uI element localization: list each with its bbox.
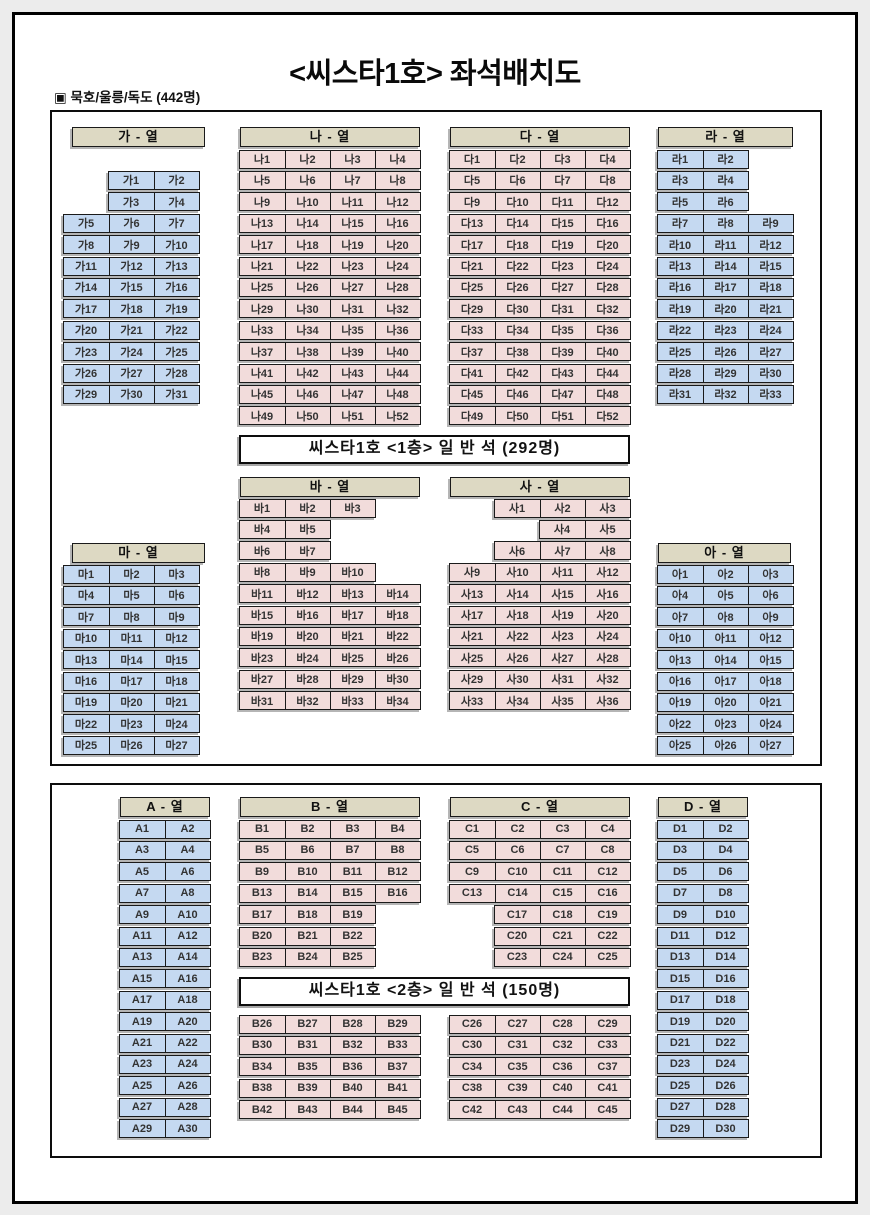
seat-나14[interactable]: 나14 (285, 215, 330, 232)
seat-다7[interactable]: 다7 (540, 172, 585, 189)
seat-A19[interactable]: A19 (120, 1013, 165, 1030)
seat-아4[interactable]: 아4 (658, 587, 703, 604)
seat-D30[interactable]: D30 (703, 1120, 748, 1137)
seat-바17[interactable]: 바17 (330, 607, 375, 624)
seat-D6[interactable]: D6 (703, 863, 748, 880)
seat-아6[interactable]: 아6 (748, 587, 793, 604)
seat-A7[interactable]: A7 (120, 885, 165, 902)
seat-가18[interactable]: 가18 (109, 300, 154, 317)
seat-D24[interactable]: D24 (703, 1056, 748, 1073)
seat-C21[interactable]: C21 (540, 928, 585, 945)
seat-바4[interactable]: 바4 (240, 521, 285, 538)
seat-나50[interactable]: 나50 (285, 407, 330, 424)
seat-C38[interactable]: C38 (450, 1080, 495, 1097)
seat-아21[interactable]: 아21 (748, 694, 793, 711)
seat-B8[interactable]: B8 (375, 842, 420, 859)
seat-마14[interactable]: 마14 (109, 651, 154, 668)
seat-A29[interactable]: A29 (120, 1120, 165, 1137)
seat-나42[interactable]: 나42 (285, 365, 330, 382)
seat-나20[interactable]: 나20 (375, 236, 420, 253)
seat-사18[interactable]: 사18 (495, 607, 540, 624)
seat-사2[interactable]: 사2 (540, 500, 585, 517)
seat-다52[interactable]: 다52 (585, 407, 630, 424)
seat-다10[interactable]: 다10 (495, 193, 540, 210)
seat-사12[interactable]: 사12 (585, 564, 630, 581)
seat-C11[interactable]: C11 (540, 863, 585, 880)
seat-바28[interactable]: 바28 (285, 671, 330, 688)
seat-다39[interactable]: 다39 (540, 343, 585, 360)
seat-라19[interactable]: 라19 (658, 300, 703, 317)
seat-아16[interactable]: 아16 (658, 673, 703, 690)
seat-가13[interactable]: 가13 (154, 258, 199, 275)
seat-C33[interactable]: C33 (585, 1037, 630, 1054)
seat-사17[interactable]: 사17 (450, 607, 495, 624)
seat-가20[interactable]: 가20 (64, 322, 109, 339)
seat-D28[interactable]: D28 (703, 1099, 748, 1116)
seat-나23[interactable]: 나23 (330, 258, 375, 275)
seat-바32[interactable]: 바32 (285, 692, 330, 709)
seat-B36[interactable]: B36 (330, 1058, 375, 1075)
seat-마5[interactable]: 마5 (109, 587, 154, 604)
seat-D17[interactable]: D17 (658, 992, 703, 1009)
seat-나3[interactable]: 나3 (330, 151, 375, 168)
seat-다46[interactable]: 다46 (495, 386, 540, 403)
seat-A27[interactable]: A27 (120, 1099, 165, 1116)
seat-바13[interactable]: 바13 (330, 585, 375, 602)
seat-바25[interactable]: 바25 (330, 649, 375, 666)
seat-바30[interactable]: 바30 (375, 671, 420, 688)
seat-나13[interactable]: 나13 (240, 215, 285, 232)
seat-B35[interactable]: B35 (285, 1058, 330, 1075)
seat-C40[interactable]: C40 (540, 1080, 585, 1097)
seat-바10[interactable]: 바10 (330, 564, 375, 581)
seat-B27[interactable]: B27 (285, 1016, 330, 1033)
seat-마22[interactable]: 마22 (64, 715, 109, 732)
seat-C16[interactable]: C16 (585, 885, 630, 902)
seat-다19[interactable]: 다19 (540, 236, 585, 253)
seat-B37[interactable]: B37 (375, 1058, 420, 1075)
seat-A4[interactable]: A4 (165, 842, 210, 859)
seat-라17[interactable]: 라17 (703, 279, 748, 296)
seat-나35[interactable]: 나35 (330, 322, 375, 339)
seat-A14[interactable]: A14 (165, 949, 210, 966)
seat-가5[interactable]: 가5 (64, 215, 109, 232)
seat-나34[interactable]: 나34 (285, 322, 330, 339)
seat-C4[interactable]: C4 (585, 821, 630, 838)
seat-C45[interactable]: C45 (585, 1101, 630, 1118)
seat-사4[interactable]: 사4 (540, 521, 585, 538)
seat-사14[interactable]: 사14 (495, 585, 540, 602)
seat-B31[interactable]: B31 (285, 1037, 330, 1054)
seat-다47[interactable]: 다47 (540, 386, 585, 403)
seat-A30[interactable]: A30 (165, 1120, 210, 1137)
seat-나43[interactable]: 나43 (330, 365, 375, 382)
seat-바22[interactable]: 바22 (375, 628, 420, 645)
seat-사34[interactable]: 사34 (495, 692, 540, 709)
seat-라18[interactable]: 라18 (748, 279, 793, 296)
seat-D25[interactable]: D25 (658, 1077, 703, 1094)
seat-가6[interactable]: 가6 (109, 215, 154, 232)
seat-나4[interactable]: 나4 (375, 151, 420, 168)
seat-D11[interactable]: D11 (658, 928, 703, 945)
seat-마13[interactable]: 마13 (64, 651, 109, 668)
seat-A6[interactable]: A6 (165, 863, 210, 880)
seat-아2[interactable]: 아2 (703, 566, 748, 583)
seat-바33[interactable]: 바33 (330, 692, 375, 709)
seat-나24[interactable]: 나24 (375, 258, 420, 275)
seat-B17[interactable]: B17 (240, 906, 285, 923)
seat-사5[interactable]: 사5 (585, 521, 630, 538)
seat-다49[interactable]: 다49 (450, 407, 495, 424)
seat-C31[interactable]: C31 (495, 1037, 540, 1054)
seat-다27[interactable]: 다27 (540, 279, 585, 296)
seat-B33[interactable]: B33 (375, 1037, 420, 1054)
seat-B21[interactable]: B21 (285, 928, 330, 945)
seat-아3[interactable]: 아3 (748, 566, 793, 583)
seat-나17[interactable]: 나17 (240, 236, 285, 253)
seat-나44[interactable]: 나44 (375, 365, 420, 382)
seat-B24[interactable]: B24 (285, 949, 330, 966)
seat-사11[interactable]: 사11 (540, 564, 585, 581)
seat-다4[interactable]: 다4 (585, 151, 630, 168)
seat-마24[interactable]: 마24 (154, 715, 199, 732)
seat-가27[interactable]: 가27 (109, 365, 154, 382)
seat-다21[interactable]: 다21 (450, 258, 495, 275)
seat-다34[interactable]: 다34 (495, 322, 540, 339)
seat-A3[interactable]: A3 (120, 842, 165, 859)
seat-바16[interactable]: 바16 (285, 607, 330, 624)
seat-다12[interactable]: 다12 (585, 193, 630, 210)
seat-A11[interactable]: A11 (120, 928, 165, 945)
seat-C7[interactable]: C7 (540, 842, 585, 859)
seat-B9[interactable]: B9 (240, 863, 285, 880)
seat-다2[interactable]: 다2 (495, 151, 540, 168)
seat-A5[interactable]: A5 (120, 863, 165, 880)
seat-가3[interactable]: 가3 (109, 193, 154, 210)
seat-사26[interactable]: 사26 (495, 649, 540, 666)
seat-나5[interactable]: 나5 (240, 172, 285, 189)
seat-사32[interactable]: 사32 (585, 671, 630, 688)
seat-사16[interactable]: 사16 (585, 585, 630, 602)
seat-B45[interactable]: B45 (375, 1101, 420, 1118)
seat-가2[interactable]: 가2 (154, 172, 199, 189)
seat-마16[interactable]: 마16 (64, 673, 109, 690)
seat-나12[interactable]: 나12 (375, 193, 420, 210)
seat-C42[interactable]: C42 (450, 1101, 495, 1118)
seat-A17[interactable]: A17 (120, 992, 165, 1009)
seat-가8[interactable]: 가8 (64, 236, 109, 253)
seat-C14[interactable]: C14 (495, 885, 540, 902)
seat-마9[interactable]: 마9 (154, 608, 199, 625)
seat-B29[interactable]: B29 (375, 1016, 420, 1033)
seat-B23[interactable]: B23 (240, 949, 285, 966)
seat-바24[interactable]: 바24 (285, 649, 330, 666)
seat-A25[interactable]: A25 (120, 1077, 165, 1094)
seat-C9[interactable]: C9 (450, 863, 495, 880)
seat-라28[interactable]: 라28 (658, 365, 703, 382)
seat-사10[interactable]: 사10 (495, 564, 540, 581)
seat-바29[interactable]: 바29 (330, 671, 375, 688)
seat-B18[interactable]: B18 (285, 906, 330, 923)
seat-A18[interactable]: A18 (165, 992, 210, 1009)
seat-아14[interactable]: 아14 (703, 651, 748, 668)
seat-사7[interactable]: 사7 (540, 542, 585, 559)
seat-다48[interactable]: 다48 (585, 386, 630, 403)
seat-다43[interactable]: 다43 (540, 365, 585, 382)
seat-다33[interactable]: 다33 (450, 322, 495, 339)
seat-바23[interactable]: 바23 (240, 649, 285, 666)
seat-다14[interactable]: 다14 (495, 215, 540, 232)
seat-C36[interactable]: C36 (540, 1058, 585, 1075)
seat-가11[interactable]: 가11 (64, 258, 109, 275)
seat-사24[interactable]: 사24 (585, 628, 630, 645)
seat-B15[interactable]: B15 (330, 885, 375, 902)
seat-라29[interactable]: 라29 (703, 365, 748, 382)
seat-D20[interactable]: D20 (703, 1013, 748, 1030)
seat-나36[interactable]: 나36 (375, 322, 420, 339)
seat-C30[interactable]: C30 (450, 1037, 495, 1054)
seat-나48[interactable]: 나48 (375, 386, 420, 403)
seat-라31[interactable]: 라31 (658, 386, 703, 403)
seat-아9[interactable]: 아9 (748, 608, 793, 625)
seat-마25[interactable]: 마25 (64, 737, 109, 754)
seat-C32[interactable]: C32 (540, 1037, 585, 1054)
seat-사6[interactable]: 사6 (495, 542, 540, 559)
seat-B5[interactable]: B5 (240, 842, 285, 859)
seat-라16[interactable]: 라16 (658, 279, 703, 296)
seat-D1[interactable]: D1 (658, 821, 703, 838)
seat-가24[interactable]: 가24 (109, 343, 154, 360)
seat-나47[interactable]: 나47 (330, 386, 375, 403)
seat-C3[interactable]: C3 (540, 821, 585, 838)
seat-다45[interactable]: 다45 (450, 386, 495, 403)
seat-바9[interactable]: 바9 (285, 564, 330, 581)
seat-나49[interactable]: 나49 (240, 407, 285, 424)
seat-바6[interactable]: 바6 (240, 542, 285, 559)
seat-사13[interactable]: 사13 (450, 585, 495, 602)
seat-B20[interactable]: B20 (240, 928, 285, 945)
seat-라27[interactable]: 라27 (748, 343, 793, 360)
seat-라7[interactable]: 라7 (658, 215, 703, 232)
seat-나40[interactable]: 나40 (375, 343, 420, 360)
seat-D16[interactable]: D16 (703, 970, 748, 987)
seat-사31[interactable]: 사31 (540, 671, 585, 688)
seat-사8[interactable]: 사8 (585, 542, 630, 559)
seat-다28[interactable]: 다28 (585, 279, 630, 296)
seat-마4[interactable]: 마4 (64, 587, 109, 604)
seat-B25[interactable]: B25 (330, 949, 375, 966)
seat-B32[interactable]: B32 (330, 1037, 375, 1054)
seat-가30[interactable]: 가30 (109, 386, 154, 403)
seat-가7[interactable]: 가7 (154, 215, 199, 232)
seat-다3[interactable]: 다3 (540, 151, 585, 168)
seat-라11[interactable]: 라11 (703, 236, 748, 253)
seat-마8[interactable]: 마8 (109, 608, 154, 625)
seat-A26[interactable]: A26 (165, 1077, 210, 1094)
seat-나29[interactable]: 나29 (240, 300, 285, 317)
seat-마19[interactable]: 마19 (64, 694, 109, 711)
seat-라15[interactable]: 라15 (748, 258, 793, 275)
seat-C23[interactable]: C23 (495, 949, 540, 966)
seat-라13[interactable]: 라13 (658, 258, 703, 275)
seat-가16[interactable]: 가16 (154, 279, 199, 296)
seat-사28[interactable]: 사28 (585, 649, 630, 666)
seat-다26[interactable]: 다26 (495, 279, 540, 296)
seat-다6[interactable]: 다6 (495, 172, 540, 189)
seat-B28[interactable]: B28 (330, 1016, 375, 1033)
seat-나16[interactable]: 나16 (375, 215, 420, 232)
seat-다16[interactable]: 다16 (585, 215, 630, 232)
seat-D23[interactable]: D23 (658, 1056, 703, 1073)
seat-B39[interactable]: B39 (285, 1080, 330, 1097)
seat-A12[interactable]: A12 (165, 928, 210, 945)
seat-바31[interactable]: 바31 (240, 692, 285, 709)
seat-가4[interactable]: 가4 (154, 193, 199, 210)
seat-B44[interactable]: B44 (330, 1101, 375, 1118)
seat-마18[interactable]: 마18 (154, 673, 199, 690)
seat-C24[interactable]: C24 (540, 949, 585, 966)
seat-A20[interactable]: A20 (165, 1013, 210, 1030)
seat-라32[interactable]: 라32 (703, 386, 748, 403)
seat-나9[interactable]: 나9 (240, 193, 285, 210)
seat-B14[interactable]: B14 (285, 885, 330, 902)
seat-D4[interactable]: D4 (703, 842, 748, 859)
seat-다8[interactable]: 다8 (585, 172, 630, 189)
seat-라9[interactable]: 라9 (748, 215, 793, 232)
seat-C27[interactable]: C27 (495, 1016, 540, 1033)
seat-D26[interactable]: D26 (703, 1077, 748, 1094)
seat-사36[interactable]: 사36 (585, 692, 630, 709)
seat-바11[interactable]: 바11 (240, 585, 285, 602)
seat-나32[interactable]: 나32 (375, 300, 420, 317)
seat-나30[interactable]: 나30 (285, 300, 330, 317)
seat-나28[interactable]: 나28 (375, 279, 420, 296)
seat-D7[interactable]: D7 (658, 885, 703, 902)
seat-바3[interactable]: 바3 (330, 500, 375, 517)
seat-나33[interactable]: 나33 (240, 322, 285, 339)
seat-라1[interactable]: 라1 (658, 151, 703, 168)
seat-아18[interactable]: 아18 (748, 673, 793, 690)
seat-나11[interactable]: 나11 (330, 193, 375, 210)
seat-D5[interactable]: D5 (658, 863, 703, 880)
seat-사15[interactable]: 사15 (540, 585, 585, 602)
seat-D19[interactable]: D19 (658, 1013, 703, 1030)
seat-라6[interactable]: 라6 (703, 193, 748, 210)
seat-C20[interactable]: C20 (495, 928, 540, 945)
seat-다44[interactable]: 다44 (585, 365, 630, 382)
seat-C37[interactable]: C37 (585, 1058, 630, 1075)
seat-D21[interactable]: D21 (658, 1035, 703, 1052)
seat-B19[interactable]: B19 (330, 906, 375, 923)
seat-라21[interactable]: 라21 (748, 300, 793, 317)
seat-D2[interactable]: D2 (703, 821, 748, 838)
seat-B22[interactable]: B22 (330, 928, 375, 945)
seat-C29[interactable]: C29 (585, 1016, 630, 1033)
seat-D15[interactable]: D15 (658, 970, 703, 987)
seat-A24[interactable]: A24 (165, 1056, 210, 1073)
seat-바26[interactable]: 바26 (375, 649, 420, 666)
seat-B42[interactable]: B42 (240, 1101, 285, 1118)
seat-아1[interactable]: 아1 (658, 566, 703, 583)
seat-마15[interactable]: 마15 (154, 651, 199, 668)
seat-B43[interactable]: B43 (285, 1101, 330, 1118)
seat-아25[interactable]: 아25 (658, 737, 703, 754)
seat-D9[interactable]: D9 (658, 906, 703, 923)
seat-마26[interactable]: 마26 (109, 737, 154, 754)
seat-바1[interactable]: 바1 (240, 500, 285, 517)
seat-D14[interactable]: D14 (703, 949, 748, 966)
seat-C34[interactable]: C34 (450, 1058, 495, 1075)
seat-가29[interactable]: 가29 (64, 386, 109, 403)
seat-바19[interactable]: 바19 (240, 628, 285, 645)
seat-바5[interactable]: 바5 (285, 521, 330, 538)
seat-마27[interactable]: 마27 (154, 737, 199, 754)
seat-C13[interactable]: C13 (450, 885, 495, 902)
seat-다15[interactable]: 다15 (540, 215, 585, 232)
seat-나46[interactable]: 나46 (285, 386, 330, 403)
seat-라14[interactable]: 라14 (703, 258, 748, 275)
seat-사3[interactable]: 사3 (585, 500, 630, 517)
seat-아8[interactable]: 아8 (703, 608, 748, 625)
seat-B10[interactable]: B10 (285, 863, 330, 880)
seat-나21[interactable]: 나21 (240, 258, 285, 275)
seat-아27[interactable]: 아27 (748, 737, 793, 754)
seat-A13[interactable]: A13 (120, 949, 165, 966)
seat-가28[interactable]: 가28 (154, 365, 199, 382)
seat-아7[interactable]: 아7 (658, 608, 703, 625)
seat-마17[interactable]: 마17 (109, 673, 154, 690)
seat-B12[interactable]: B12 (375, 863, 420, 880)
seat-C28[interactable]: C28 (540, 1016, 585, 1033)
seat-아23[interactable]: 아23 (703, 715, 748, 732)
seat-다29[interactable]: 다29 (450, 300, 495, 317)
seat-라8[interactable]: 라8 (703, 215, 748, 232)
seat-사29[interactable]: 사29 (450, 671, 495, 688)
seat-사21[interactable]: 사21 (450, 628, 495, 645)
seat-다18[interactable]: 다18 (495, 236, 540, 253)
seat-사23[interactable]: 사23 (540, 628, 585, 645)
seat-가17[interactable]: 가17 (64, 300, 109, 317)
seat-다42[interactable]: 다42 (495, 365, 540, 382)
seat-다1[interactable]: 다1 (450, 151, 495, 168)
seat-다37[interactable]: 다37 (450, 343, 495, 360)
seat-B1[interactable]: B1 (240, 821, 285, 838)
seat-C39[interactable]: C39 (495, 1080, 540, 1097)
seat-나37[interactable]: 나37 (240, 343, 285, 360)
seat-가15[interactable]: 가15 (109, 279, 154, 296)
seat-다11[interactable]: 다11 (540, 193, 585, 210)
seat-라3[interactable]: 라3 (658, 172, 703, 189)
seat-다13[interactable]: 다13 (450, 215, 495, 232)
seat-마3[interactable]: 마3 (154, 566, 199, 583)
seat-A10[interactable]: A10 (165, 906, 210, 923)
seat-나26[interactable]: 나26 (285, 279, 330, 296)
seat-C17[interactable]: C17 (495, 906, 540, 923)
seat-다5[interactable]: 다5 (450, 172, 495, 189)
seat-나1[interactable]: 나1 (240, 151, 285, 168)
seat-나2[interactable]: 나2 (285, 151, 330, 168)
seat-나25[interactable]: 나25 (240, 279, 285, 296)
seat-A1[interactable]: A1 (120, 821, 165, 838)
seat-D8[interactable]: D8 (703, 885, 748, 902)
seat-마1[interactable]: 마1 (64, 566, 109, 583)
seat-마6[interactable]: 마6 (154, 587, 199, 604)
seat-B6[interactable]: B6 (285, 842, 330, 859)
seat-D3[interactable]: D3 (658, 842, 703, 859)
seat-사9[interactable]: 사9 (450, 564, 495, 581)
seat-바7[interactable]: 바7 (285, 542, 330, 559)
seat-다50[interactable]: 다50 (495, 407, 540, 424)
